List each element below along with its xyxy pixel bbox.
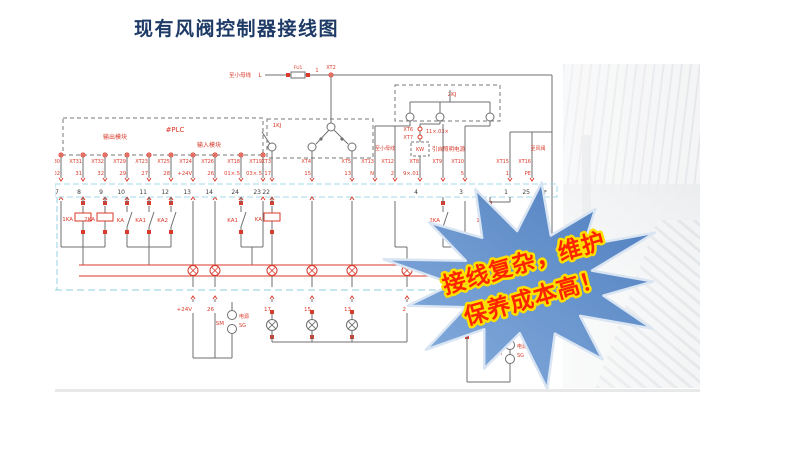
svg-text:24: 24 xyxy=(231,189,239,196)
svg-text:13: 13 xyxy=(344,171,351,177)
svg-text:8: 8 xyxy=(77,189,81,196)
svg-text:13: 13 xyxy=(183,189,191,196)
svg-text:+24V: +24V xyxy=(177,307,193,313)
svg-text:17: 17 xyxy=(264,171,271,177)
svg-text:XT25: XT25 xyxy=(157,159,170,165)
svg-text:XT10: XT10 xyxy=(451,159,464,165)
svg-text:1: 1 xyxy=(315,68,318,74)
svg-text:XT6: XT6 xyxy=(403,127,413,133)
svg-text:XT26: XT26 xyxy=(201,159,214,165)
svg-text:12: 12 xyxy=(161,189,169,196)
plc-box: 输出模块#PLC输入模块 xyxy=(63,118,263,155)
svg-text:XT13: XT13 xyxy=(361,159,374,165)
diagram-panel: 至小母线LFU11XT2输出模块#PLC输入模块XT30N027XT31318X… xyxy=(55,62,700,392)
svg-text:XT3: XT3 xyxy=(261,159,271,165)
starburst-shape xyxy=(384,183,655,390)
svg-text:1KA: 1KA xyxy=(62,217,73,223)
svg-text:引自照明电源: 引自照明电源 xyxy=(432,145,466,153)
svg-text:XT19: XT19 xyxy=(249,159,262,165)
svg-text:XT4: XT4 xyxy=(301,159,311,165)
plc-terminal-columns: XT30N027XT31318XT32329XT292910XT232711XT… xyxy=(55,153,265,200)
svg-text:至风阀: 至风阀 xyxy=(530,145,545,152)
svg-text:1: 1 xyxy=(506,171,509,177)
svg-text:N: N xyxy=(370,171,374,177)
svg-text:1KJ: 1KJ xyxy=(273,123,282,129)
svg-text:9: 9 xyxy=(99,189,103,196)
slide: 现有风阀控制器接线图 至小母线LFU11XT2输出模块#PLC输入模块XT30N… xyxy=(0,0,800,450)
svg-text:26: 26 xyxy=(207,307,214,313)
bottom-divider xyxy=(55,389,700,392)
svg-text:XT18: XT18 xyxy=(227,159,240,165)
svg-text:31: 31 xyxy=(75,171,82,177)
svg-text:电源: 电源 xyxy=(239,313,249,320)
svg-text:XT5: XT5 xyxy=(341,159,351,165)
svg-text:14: 14 xyxy=(205,189,213,196)
svg-text:15: 15 xyxy=(304,171,311,177)
svg-text:KA: KA xyxy=(117,218,125,224)
svg-text:XT30: XT30 xyxy=(55,159,60,165)
svg-text:10: 10 xyxy=(117,189,125,196)
svg-text:KA2: KA2 xyxy=(157,218,168,224)
svg-text:N02: N02 xyxy=(55,171,60,177)
svg-text:01×.5: 01×.5 xyxy=(224,171,240,177)
svg-text:22: 22 xyxy=(262,189,270,196)
svg-text:XT29: XT29 xyxy=(113,159,126,165)
page-title: 现有风阀控制器接线图 xyxy=(134,14,339,41)
svg-text:XT23: XT23 xyxy=(135,159,148,165)
svg-text:2KA: 2KA xyxy=(84,217,95,223)
svg-text:KA1: KA1 xyxy=(227,218,238,224)
svg-text:XT8: XT8 xyxy=(409,159,419,165)
svg-text:2KJ: 2KJ xyxy=(448,92,457,98)
svg-text:9×.01: 9×.01 xyxy=(403,171,419,177)
svg-text:2: 2 xyxy=(391,171,394,177)
callout-starburst: 接线复杂，维护 保养成本高！ xyxy=(380,180,675,394)
svg-text:SM: SM xyxy=(216,321,224,327)
svg-text:FU1: FU1 xyxy=(294,65,303,71)
svg-text:至小母线: 至小母线 xyxy=(229,71,252,79)
svg-text:XT7: XT7 xyxy=(403,135,413,141)
svg-text:XT31: XT31 xyxy=(69,159,82,165)
svg-text:XT15: XT15 xyxy=(496,159,509,165)
svg-text:PE: PE xyxy=(525,171,531,177)
svg-text:XT24: XT24 xyxy=(179,159,192,165)
svg-text:7: 7 xyxy=(55,189,59,196)
svg-text:#PLC: #PLC xyxy=(166,126,185,134)
svg-text:输出模块: 输出模块 xyxy=(103,133,127,141)
svg-text:+24V: +24V xyxy=(178,171,193,177)
svg-text:11×.03×: 11×.03× xyxy=(426,129,449,135)
svg-text:27: 27 xyxy=(141,171,148,177)
svg-text:32: 32 xyxy=(97,171,104,177)
svg-text:XT2: XT2 xyxy=(326,65,336,71)
svg-text:XT32: XT32 xyxy=(91,159,104,165)
svg-text:5: 5 xyxy=(461,171,464,177)
svg-text:KA: KA xyxy=(255,217,263,223)
svg-text:03×.5: 03×.5 xyxy=(246,171,262,177)
svg-text:SG: SG xyxy=(239,323,246,329)
svg-text:L: L xyxy=(258,72,262,79)
svg-text:28: 28 xyxy=(163,171,170,177)
svg-text:26: 26 xyxy=(207,171,214,177)
svg-text:KW: KW xyxy=(416,147,424,153)
svg-text:23: 23 xyxy=(253,189,261,196)
svg-text:11: 11 xyxy=(139,189,147,196)
svg-text:至小母线: 至小母线 xyxy=(375,145,395,152)
kj1-box: 1KJXT31722XT415XT513 xyxy=(261,119,373,200)
svg-text:KA1: KA1 xyxy=(135,218,146,224)
svg-text:XT12: XT12 xyxy=(381,159,394,165)
svg-text:29: 29 xyxy=(119,171,126,177)
svg-text:输入模块: 输入模块 xyxy=(197,141,221,149)
svg-text:XT16: XT16 xyxy=(518,159,531,165)
svg-text:XT9: XT9 xyxy=(432,159,442,165)
